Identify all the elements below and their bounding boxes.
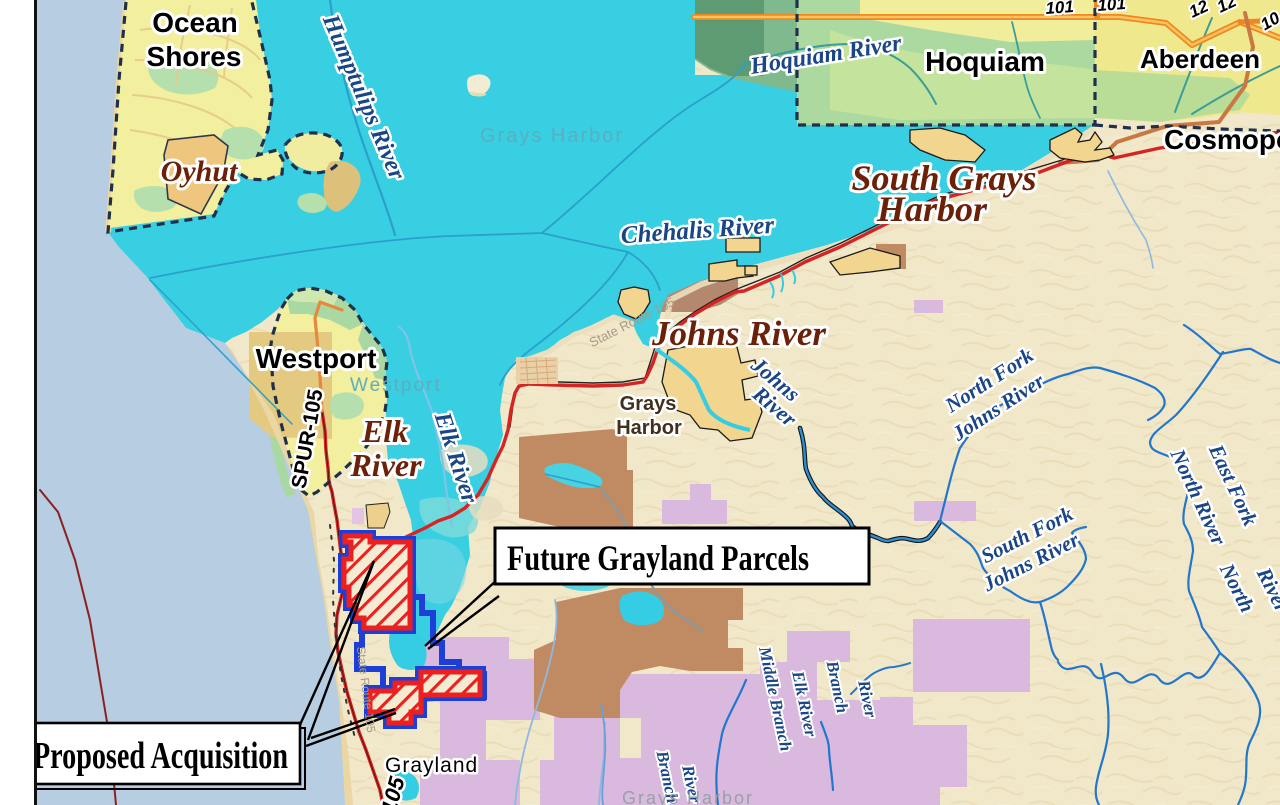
svg-text:Harbor: Harbor bbox=[876, 189, 988, 229]
svg-text:Oyhut: Oyhut bbox=[161, 155, 239, 188]
svg-text:101: 101 bbox=[1097, 0, 1127, 15]
svg-text:Future Grayland Parcels: Future Grayland Parcels bbox=[507, 538, 809, 578]
svg-text:Johns River: Johns River bbox=[651, 314, 826, 353]
svg-text:Elk: Elk bbox=[361, 413, 408, 449]
svg-text:101: 101 bbox=[1045, 0, 1075, 18]
svg-text:Cosmopoli: Cosmopoli bbox=[1164, 124, 1280, 155]
svg-text:Grays Harbor: Grays Harbor bbox=[622, 788, 754, 805]
svg-text:River: River bbox=[349, 447, 422, 483]
svg-text:Grays Harbor: Grays Harbor bbox=[480, 125, 624, 147]
svg-text:Westport: Westport bbox=[350, 375, 442, 396]
svg-text:Westport: Westport bbox=[256, 343, 377, 374]
svg-text:Shores: Shores bbox=[147, 41, 242, 72]
svg-text:Hoquiam: Hoquiam bbox=[925, 46, 1045, 77]
svg-text:Grays: Grays bbox=[620, 393, 677, 415]
svg-text:Aberdeen: Aberdeen bbox=[1140, 44, 1260, 74]
svg-text:Harbor: Harbor bbox=[616, 417, 682, 439]
svg-text:Ocean: Ocean bbox=[152, 7, 238, 38]
svg-text:Proposed Acquisition: Proposed Acquisition bbox=[33, 735, 288, 777]
svg-text:Grayland: Grayland bbox=[385, 754, 478, 777]
